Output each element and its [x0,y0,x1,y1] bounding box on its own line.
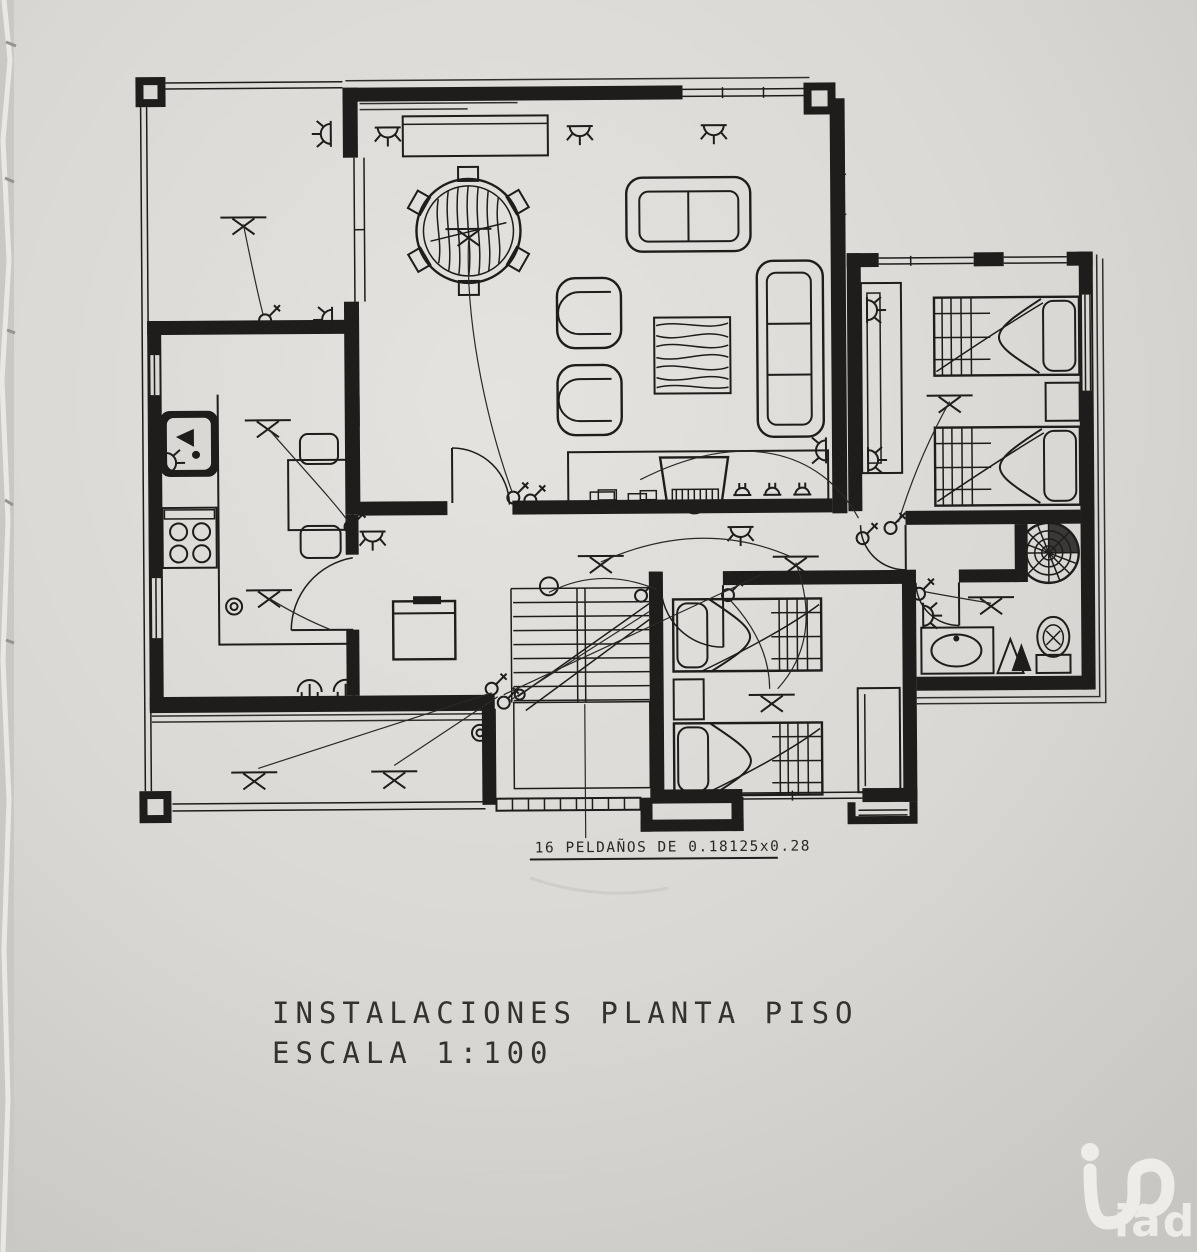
floor-plan-svg: 16 PELDAÑOS DE 0.18125x0.28 INSTALACIONE… [0,0,1197,1252]
iad-logo-icon [1081,1143,1099,1161]
spiral-fan-icon [1019,523,1079,583]
paper-background [0,0,1197,1252]
iad-logo-text: iad [1114,1196,1196,1247]
stair-note-text: 16 PELDAÑOS DE 0.18125x0.28 [535,838,811,857]
plan-title: INSTALACIONES PLANTA PISO [272,996,859,1030]
plan-scale: ESCALA 1:100 [272,1036,554,1070]
scanned-floor-plan-photo: 16 PELDAÑOS DE 0.18125x0.28 INSTALACIONE… [0,0,1197,1252]
